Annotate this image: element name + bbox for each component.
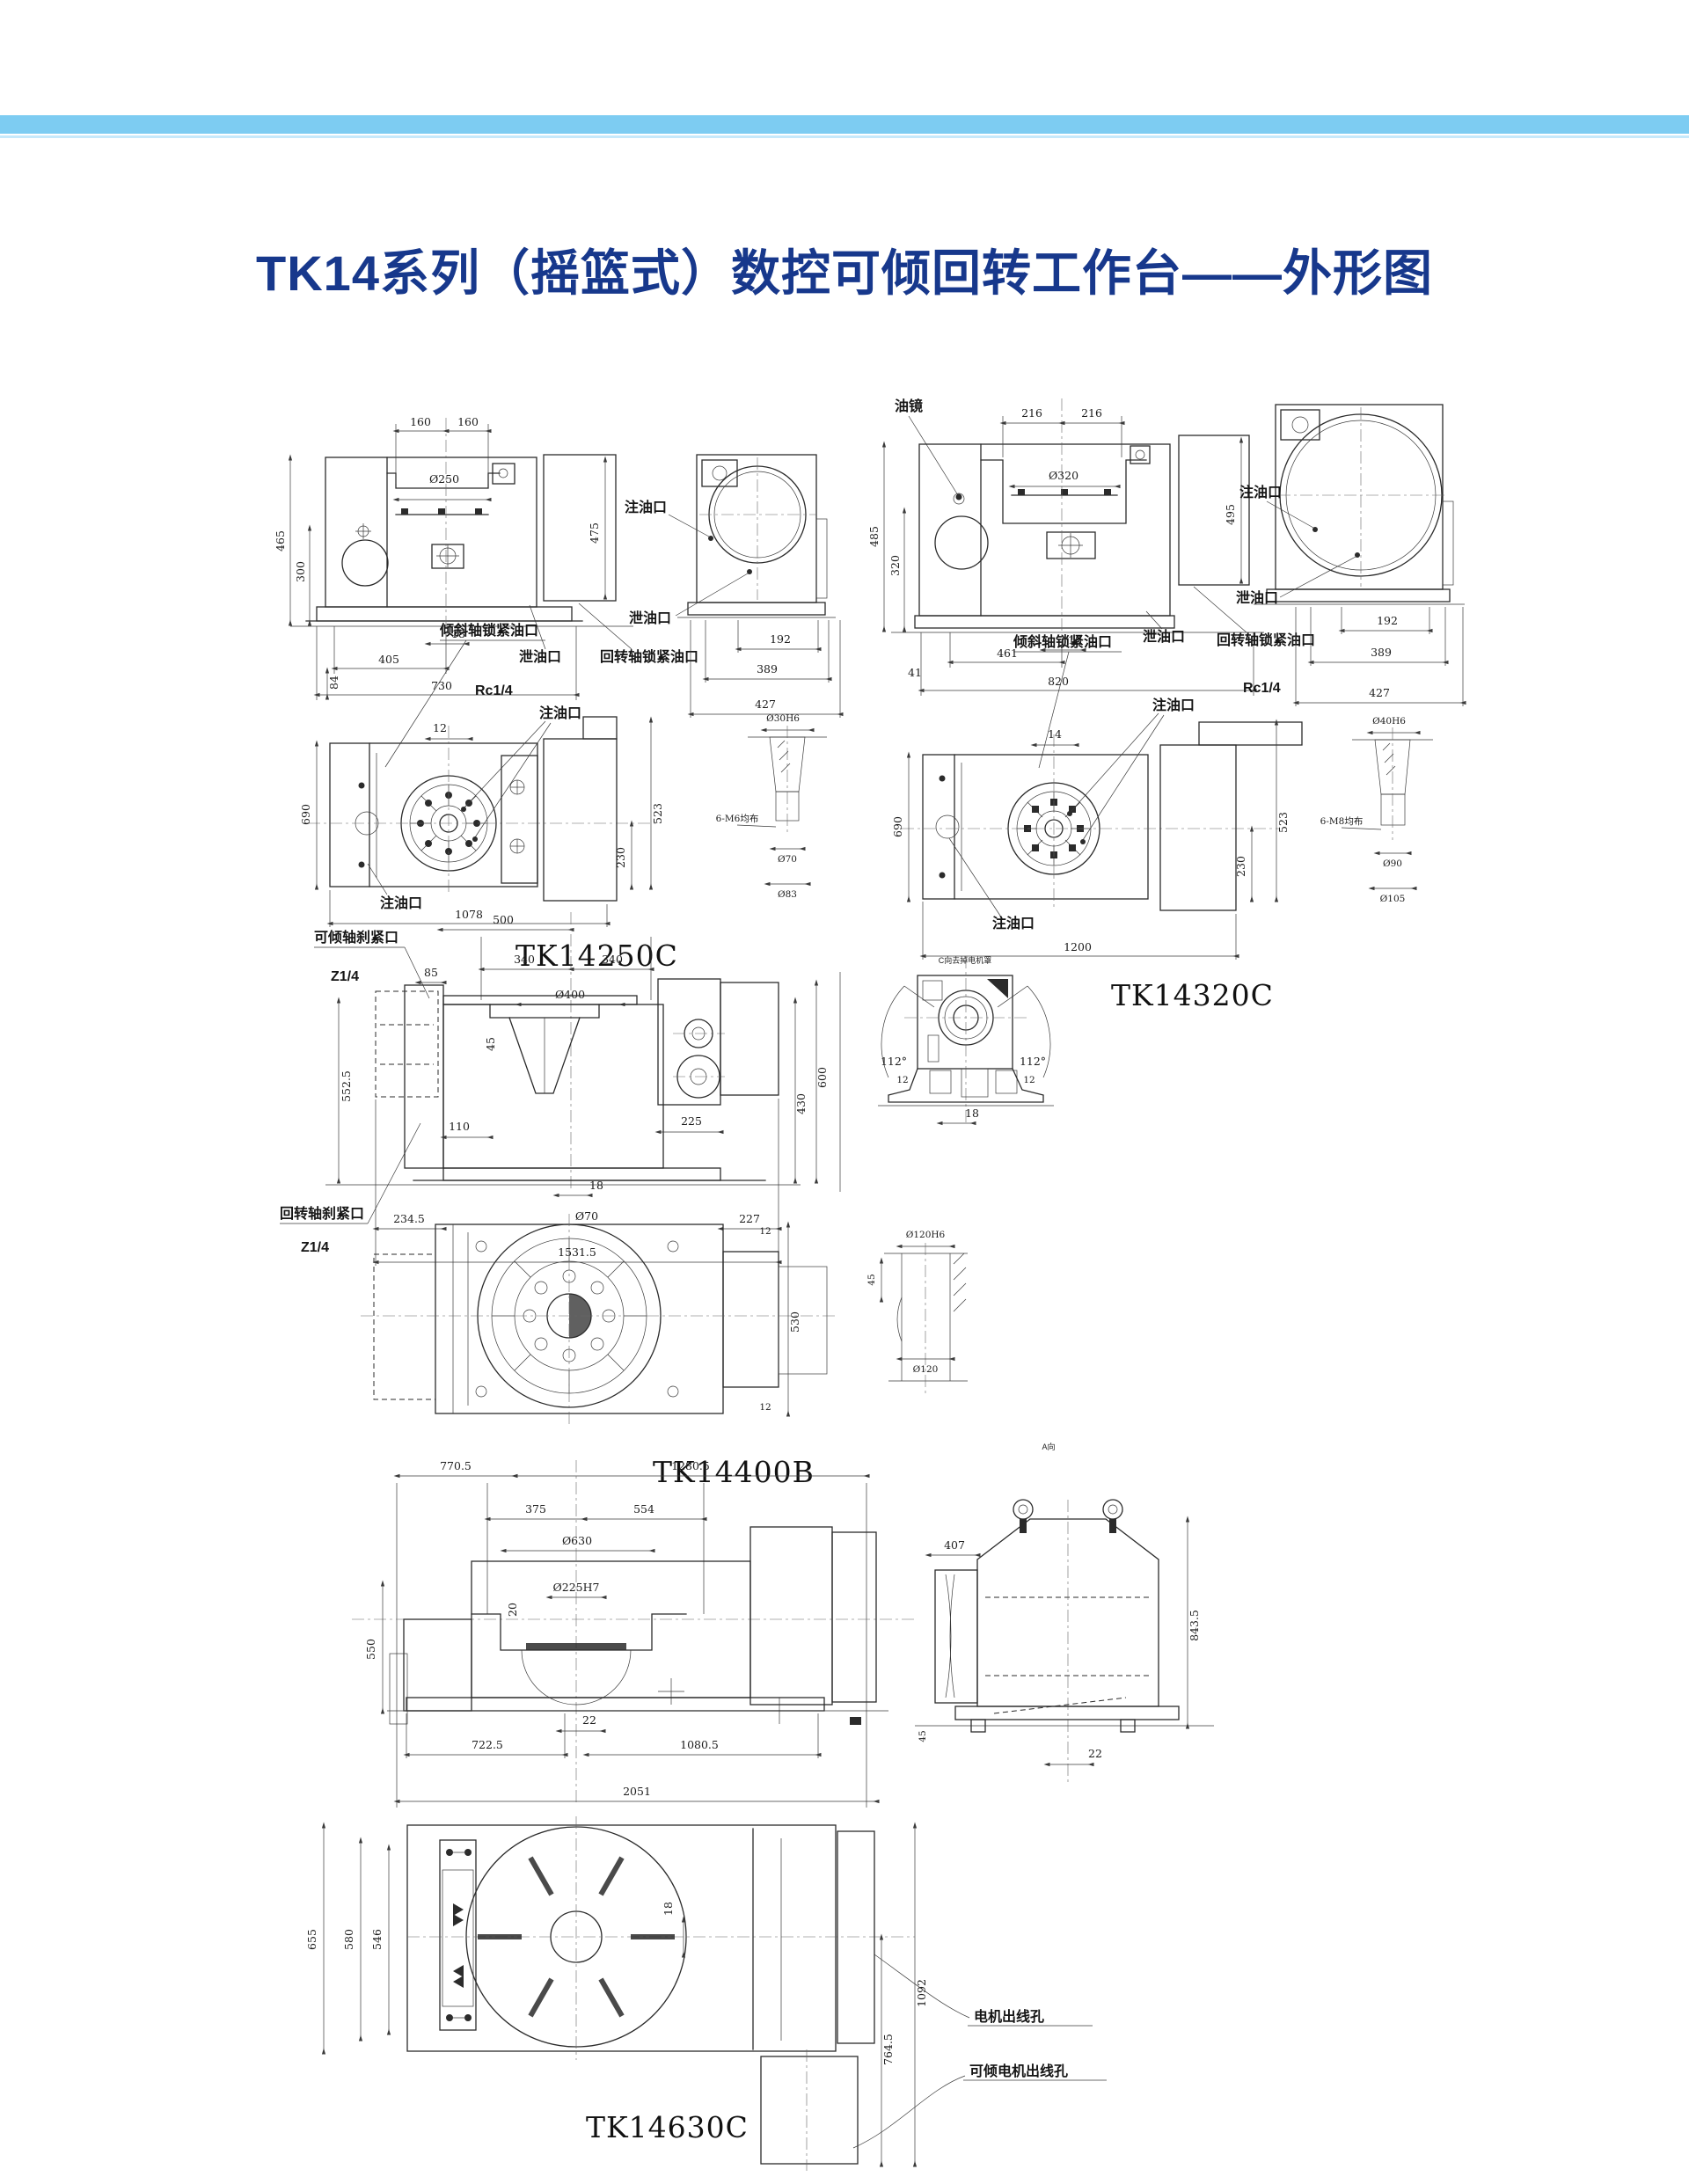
dim: 300 [294,561,307,582]
dim: 225 [681,1114,702,1128]
dim: 475 [588,522,601,544]
dim: 160 [457,415,479,428]
catalog-page: TK14系列（摇篮式）数控可倾回转工作台——外形图 475 [0,0,1689,2184]
accent-bar-sub [0,135,1689,138]
dim: 1092 [915,1979,928,2007]
dim: Ø70 [778,854,797,865]
dim: 1080.5 [680,1738,719,1751]
dim: Ø250 [429,472,459,486]
model-label: TK14630C [586,2110,749,2144]
dim: 405 [378,653,399,666]
oil-sight-label: 油镜 [895,398,923,414]
dim: 465 [274,530,287,551]
thread-t-label: Z1/4 [331,969,359,984]
tk14630c-plan-view: 655 580 546 [305,1816,1107,2171]
tk14400b-detail-view: Ø120H6 45 Ø120 [866,1230,968,1394]
dim: 554 [633,1502,654,1516]
dim: 112° [1020,1055,1046,1068]
dim: 12 [759,1402,771,1413]
dim: 12 [896,1075,908,1085]
dim: 340 [602,953,623,966]
dim: 552.5 [340,1070,353,1102]
dim: 690 [299,804,312,825]
accent-bar [0,115,1689,134]
dim: Ø120 [913,1364,939,1375]
dim: 14 [1048,727,1062,741]
dim: 340 [514,953,535,966]
oil-fill-label: 注油口 [1239,484,1282,500]
dim: 12 [759,1226,771,1237]
page-title: TK14系列（摇篮式）数控可倾回转工作台——外形图 [256,234,1433,305]
dim: 41 [908,666,922,679]
dim: 216 [1081,406,1102,420]
dim: 407 [944,1538,965,1552]
motor-hole-label: 电机出线孔 [974,2008,1044,2025]
drawing-tk14400b: 可倾轴刹紧口 Z1/4 500 340 340 Ø400 85 [273,902,1399,1491]
dim: 20 [506,1603,519,1617]
dim: Ø30H6 [766,713,800,724]
tk14320c-detail-view: Ø40H6 6-M8均布 Ø90 Ø105 [1320,716,1433,904]
dim: 530 [788,1311,801,1333]
rotary-lock-label: 回转轴锁紧油口 [1217,632,1315,648]
dim: 2051 [623,1785,651,1798]
dim: 500 [493,913,514,926]
dim: 45 [484,1037,497,1051]
dim: 192 [770,632,791,646]
dim: Ø400 [555,988,585,1001]
oil-fill-plan-label: 注油口 [1152,697,1195,713]
drain-side-label: 泄油口 [629,610,671,626]
dim: 389 [757,662,778,676]
drawing-tk14630c: 770.5 1280.5 375 554 Ø630 Ø225H7 [299,1434,1232,2173]
tilt-lock-label: 倾斜轴锁紧油口 [1013,633,1112,650]
tk14630c-front-view: 770.5 1280.5 375 554 Ø630 Ø225H7 [352,1459,915,1808]
dim: 523 [1276,812,1290,833]
dim: 18 [662,1902,675,1916]
dim: 230 [614,847,627,868]
tk14400b-side-view: 可倾轴刹紧口 Z1/4 500 340 340 Ø400 85 [280,912,840,1266]
drawing-tk14250c: 475 160 160 Ø250 465 300 18 [255,369,880,985]
tk14250c-detail-view: Ø30H6 6-M6均布 Ø70 Ø83 [716,713,827,900]
dim: 690 [891,816,904,837]
dim: 1280.5 [671,1459,710,1472]
dim: 1531.5 [558,1245,596,1259]
dim: 843.5 [1188,1610,1201,1641]
rotary-brake-label: 回转轴刹紧口 [280,1205,364,1222]
dim: 6-M6均布 [716,814,759,824]
dim: 12 [1023,1075,1035,1085]
dim: 18 [965,1107,979,1120]
dim: 485 [867,526,881,547]
dim: 12 [433,721,447,734]
dim: 234.5 [393,1212,425,1225]
tk14250c-front-view: 475 160 160 Ø250 465 300 18 [274,415,698,767]
dim: 320 [888,555,902,576]
dim: 820 [1048,675,1069,688]
thread-b-label: Z1/4 [301,1240,329,1255]
dim: 85 [424,966,438,979]
dim: 110 [449,1120,470,1133]
dim: 192 [1377,614,1398,627]
dim: 770.5 [440,1459,472,1472]
dim: 375 [525,1502,546,1516]
dim: 45 [866,1274,877,1285]
drain-side-label: 泄油口 [1236,589,1278,606]
dim: 227 [739,1212,760,1225]
dim: 427 [755,698,776,711]
tk14320c-front-view: 油镜 495 [867,398,1315,696]
end-view-caption: C向去掉电机罩 [939,955,992,965]
dim: 18 [589,1179,603,1192]
rotary-lock-label: 回转轴锁紧油口 [600,648,698,665]
tk14630c-side-view: A向 407 84 [915,1442,1214,1786]
side-view-caption: A向 [1042,1442,1055,1451]
dim: 84 [327,676,340,690]
drain-label: 泄油口 [1143,628,1185,645]
dim: 430 [794,1093,808,1114]
dim: 22 [582,1713,596,1727]
dim: Ø70 [575,1209,598,1223]
oil-fill-plan-label: 注油口 [539,705,581,721]
dim: 230 [1234,856,1247,877]
dim: Ø320 [1049,469,1078,482]
dim: Ø630 [562,1534,592,1547]
drain-label: 泄油口 [519,648,561,665]
dim: 722.5 [472,1738,503,1751]
dim: Ø90 [1383,858,1402,869]
dim: 6-M8均布 [1320,816,1364,827]
thread-label: Rc1/4 [475,683,513,698]
tk14250c-side-view: 注油口 泄油口 192 389 427 [625,455,840,718]
dim: 580 [342,1929,355,1950]
dim: 523 [651,803,664,824]
dim: Ø40H6 [1372,716,1406,727]
dim: Ø120H6 [906,1230,946,1240]
dim: 22 [1088,1747,1102,1760]
tilt-brake-label: 可倾轴刹紧口 [314,929,398,946]
dim: 216 [1021,406,1042,420]
dim: 389 [1371,646,1392,659]
dim: 45 [918,1730,928,1742]
tilt-lock-label: 倾斜轴锁紧油口 [439,622,538,639]
dim: 427 [1369,686,1390,699]
thread-label: Rc1/4 [1243,681,1281,696]
dim: 655 [305,1929,318,1950]
oil-fill-label: 注油口 [625,499,667,515]
tilt-motor-hole-label: 可倾电机出线孔 [969,2063,1068,2079]
dim: 550 [364,1639,377,1660]
dim: 160 [410,415,431,428]
tk14320c-side-view: 注油口 泄油口 192 389 427 [1236,405,1465,706]
tk14400b-end-view: C向去掉电机罩 112° 112° 12 12 18 [878,955,1054,1123]
dim: 764.5 [881,2034,895,2065]
dim: Ø83 [778,889,797,900]
dim: 546 [370,1929,384,1950]
dim: 600 [815,1067,829,1088]
dim: 495 [1224,504,1237,525]
dim: 112° [881,1055,907,1068]
